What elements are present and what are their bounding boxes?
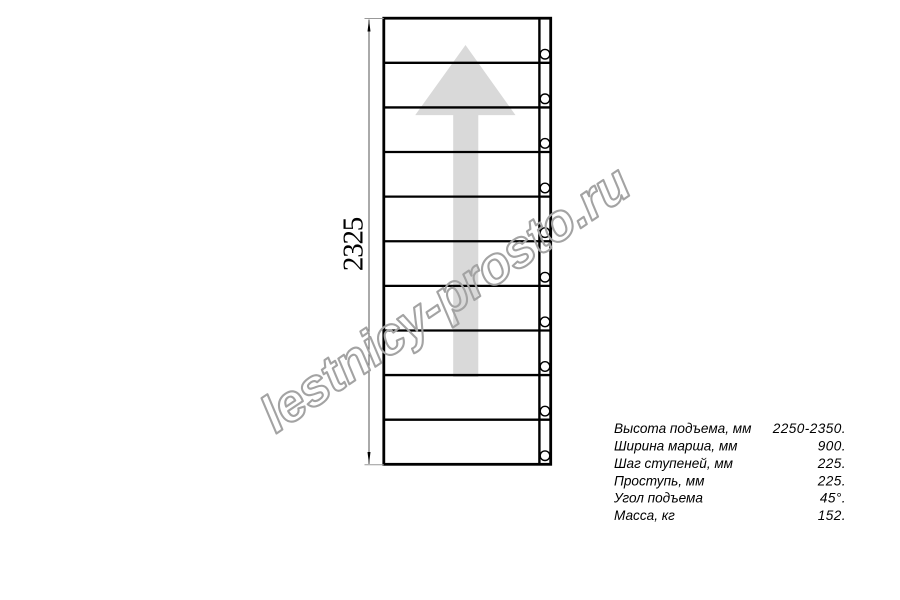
svg-text:900.: 900. [818, 439, 846, 454]
svg-text:152.: 152. [818, 508, 846, 523]
svg-text:Ширина марша, мм: Ширина марша, мм [614, 439, 738, 454]
svg-text:Угол подъема: Угол подъема [613, 491, 703, 506]
svg-text:225.: 225. [817, 473, 846, 488]
svg-text:225.: 225. [817, 456, 846, 471]
svg-text:Высота подъема, мм: Высота подъема, мм [614, 421, 752, 436]
svg-text:Масса, кг: Масса, кг [614, 508, 675, 523]
svg-text:Проступь, мм: Проступь, мм [614, 473, 705, 488]
svg-text:2250-2350.: 2250-2350. [772, 421, 846, 436]
svg-text:Шаг ступеней, мм: Шаг ступеней, мм [614, 456, 734, 471]
svg-text:2325: 2325 [338, 217, 370, 271]
svg-text:45°.: 45°. [820, 491, 846, 506]
